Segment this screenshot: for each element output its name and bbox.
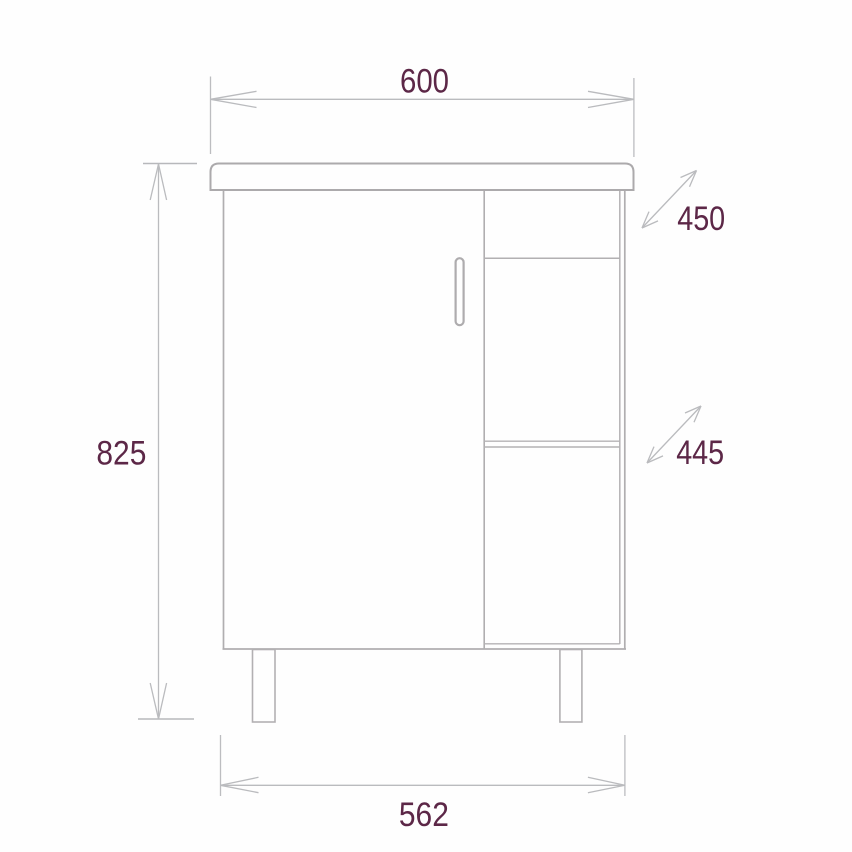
svg-text:450: 450 xyxy=(677,200,725,238)
svg-text:600: 600 xyxy=(400,63,449,101)
svg-text:825: 825 xyxy=(96,435,146,473)
svg-text:445: 445 xyxy=(676,434,724,472)
svg-text:562: 562 xyxy=(399,796,449,834)
